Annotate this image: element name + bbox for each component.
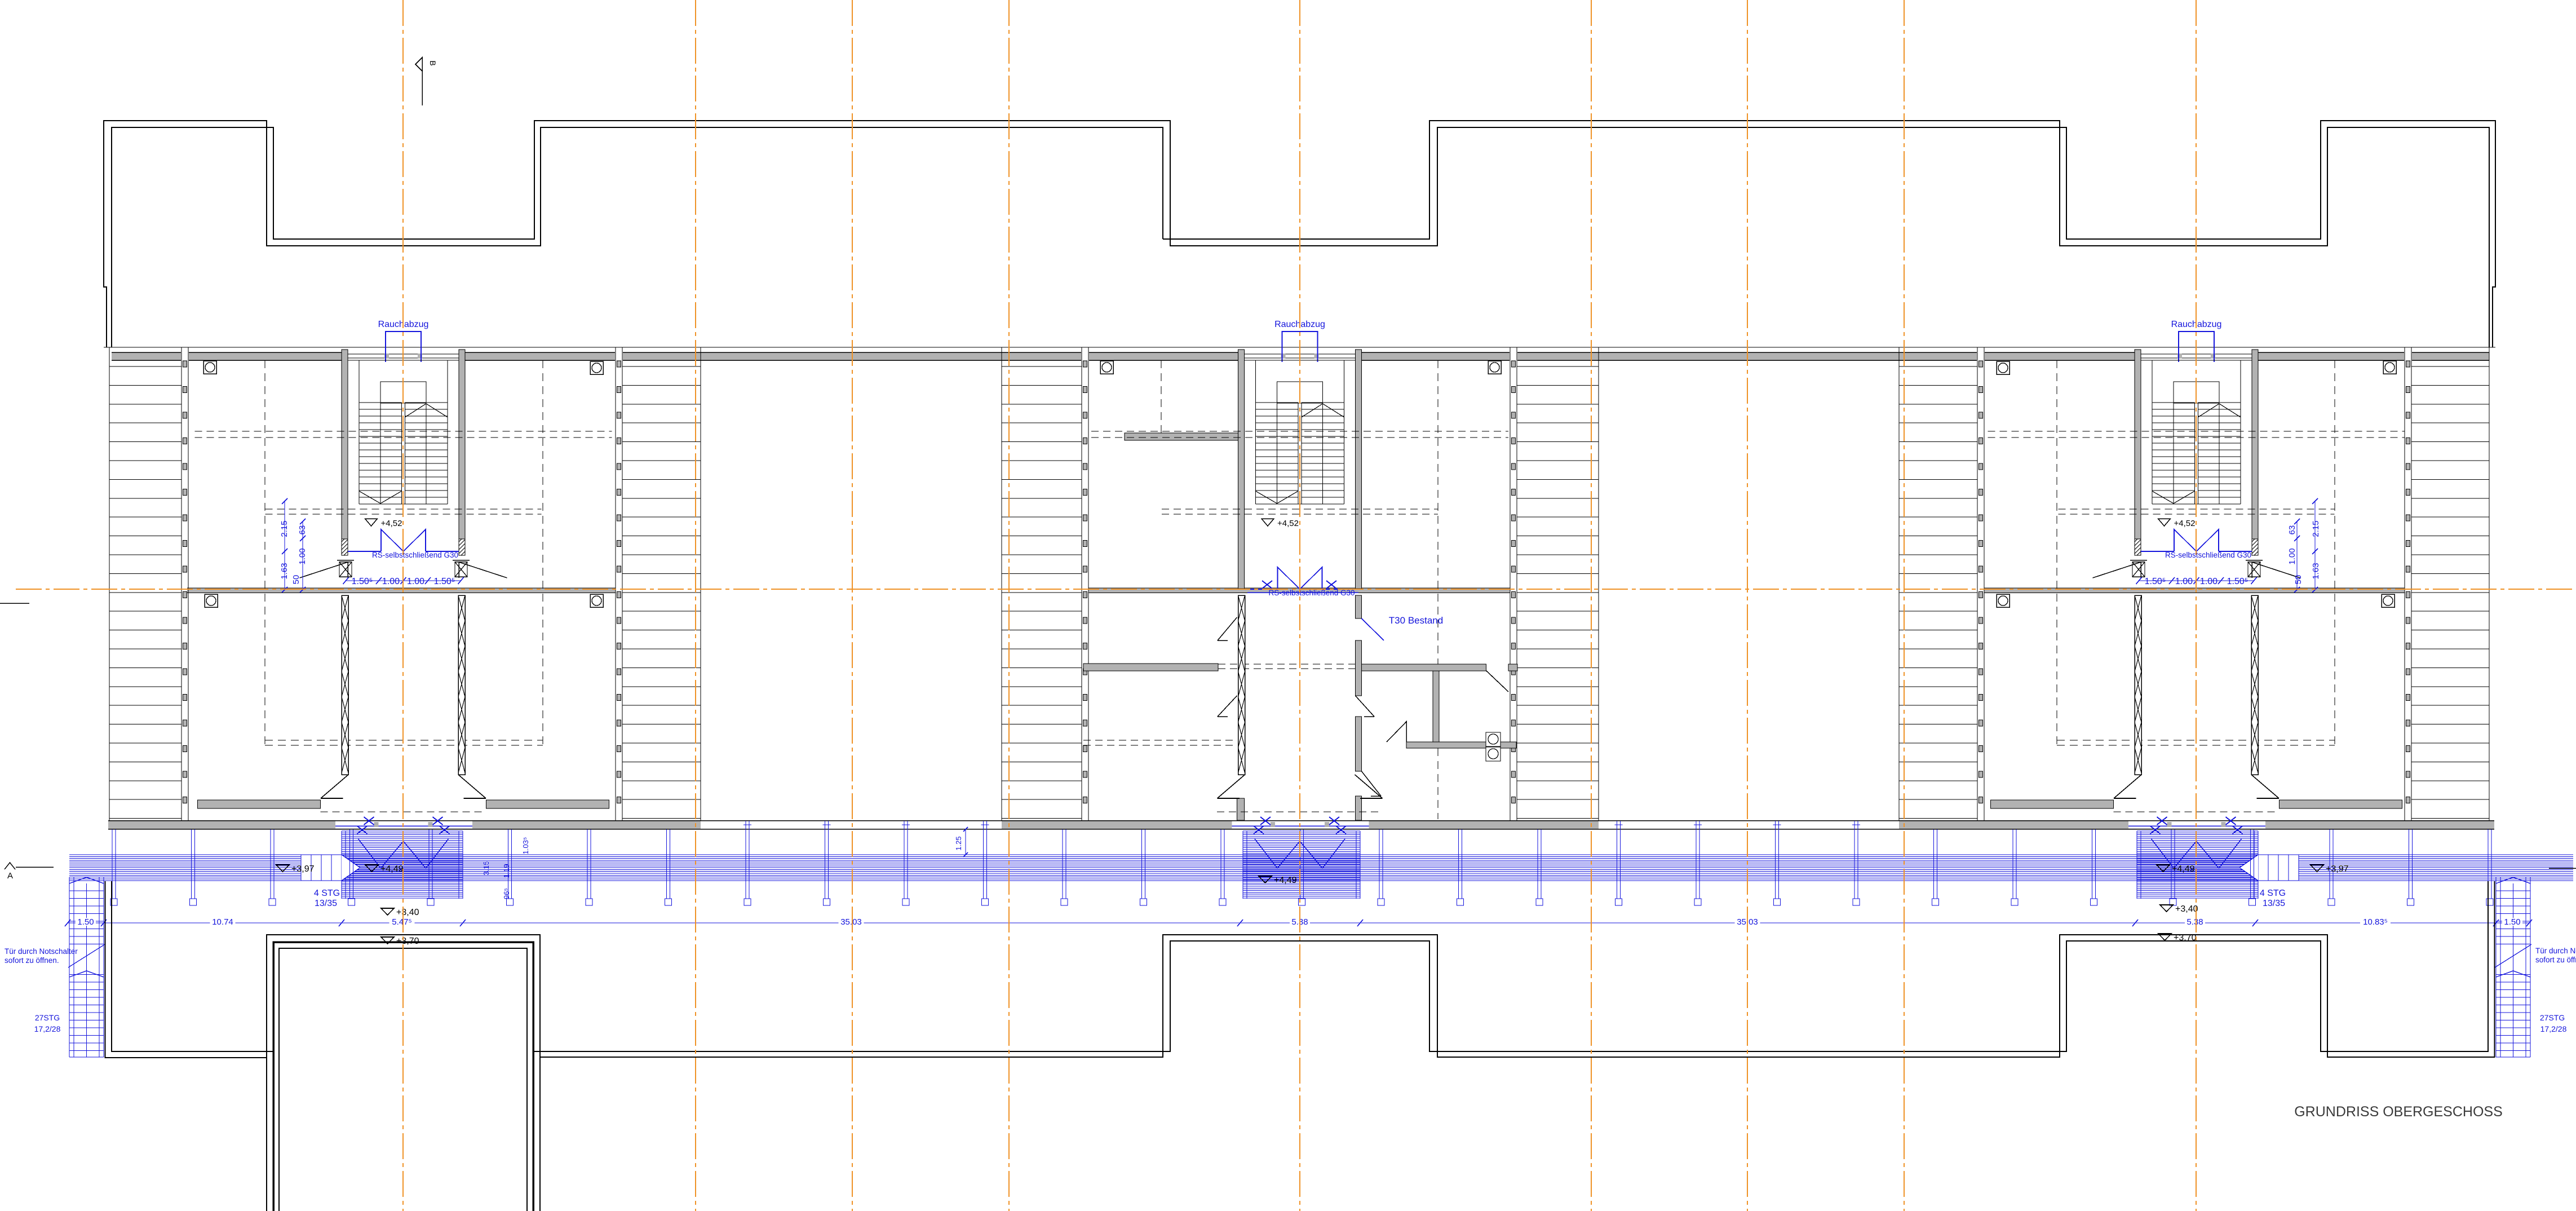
svg-text:RS-selbstschließend G30: RS-selbstschließend G30 [372, 551, 458, 559]
svg-text:50: 50 [2294, 575, 2303, 585]
svg-text:1.19: 1.19 [502, 864, 511, 878]
svg-text:T30 Bestand: T30 Bestand [1389, 615, 1443, 626]
svg-text:A: A [7, 871, 13, 881]
svg-text:2.15: 2.15 [280, 520, 289, 537]
svg-text:1.50⁵: 1.50⁵ [434, 577, 455, 586]
svg-text:RS-selbstschließend G30: RS-selbstschließend G30 [1268, 589, 1355, 597]
svg-text:1.00: 1.00 [407, 577, 424, 586]
svg-text:5.38: 5.38 [2186, 917, 2203, 927]
svg-text:+3,97: +3,97 [291, 864, 315, 874]
svg-text:4 STG: 4 STG [2260, 889, 2286, 898]
svg-text:1.63: 1.63 [280, 563, 289, 579]
svg-text:+4,49: +4,49 [2172, 864, 2195, 874]
svg-text:B: B [428, 60, 437, 65]
svg-text:27STG: 27STG [2540, 1013, 2565, 1022]
svg-text:+4,52: +4,52 [2174, 519, 2196, 528]
svg-text:17,2/28: 17,2/28 [34, 1024, 61, 1033]
svg-text:35.03: 35.03 [840, 917, 862, 927]
svg-text:+4,49: +4,49 [380, 864, 404, 874]
svg-text:+3,40: +3,40 [2175, 904, 2198, 914]
svg-text:+3,40: +3,40 [396, 908, 419, 917]
svg-text:1.00: 1.00 [382, 577, 400, 586]
svg-text:63: 63 [298, 525, 307, 535]
svg-text:1.00: 1.00 [2175, 577, 2193, 586]
svg-text:27STG: 27STG [35, 1013, 60, 1022]
svg-text:1.50⁵: 1.50⁵ [2227, 577, 2249, 586]
svg-text:13/35: 13/35 [2263, 899, 2285, 908]
svg-text:RS-selbstschließend G30: RS-selbstschließend G30 [2165, 551, 2251, 559]
svg-text:1.03⁵: 1.03⁵ [521, 837, 530, 855]
svg-text:96⁵: 96⁵ [502, 888, 511, 899]
svg-text:50: 50 [291, 575, 301, 585]
svg-text:3.15: 3.15 [482, 861, 490, 875]
svg-text:1.63: 1.63 [2311, 563, 2321, 579]
svg-text:+4,52: +4,52 [381, 519, 402, 528]
svg-text:10.83⁵: 10.83⁵ [2363, 917, 2388, 927]
svg-text:63: 63 [2287, 525, 2297, 535]
svg-text:1.50⁵: 1.50⁵ [352, 577, 373, 586]
svg-text:Tür durch Nots: Tür durch Nots [2535, 947, 2576, 955]
svg-text:+4,49: +4,49 [1274, 876, 1297, 885]
svg-text:1.50: 1.50 [2504, 917, 2520, 927]
svg-text:1.00: 1.00 [2287, 548, 2297, 564]
svg-text:17,2/28: 17,2/28 [2540, 1024, 2567, 1033]
svg-text:GRUNDRISS OBERGESCHOSS: GRUNDRISS OBERGESCHOSS [2294, 1104, 2503, 1120]
svg-text:13/35: 13/35 [315, 899, 337, 908]
svg-text:2.15: 2.15 [2311, 520, 2321, 537]
svg-text:sofort zu öffne: sofort zu öffne [2535, 956, 2576, 964]
svg-text:1.00: 1.00 [298, 548, 307, 564]
svg-text:1.00: 1.00 [2200, 577, 2218, 586]
svg-text:5.47⁵: 5.47⁵ [392, 917, 411, 927]
svg-text:1.50: 1.50 [77, 917, 94, 927]
svg-text:1.25: 1.25 [954, 836, 963, 850]
svg-text:Tür durch Notschalter: Tür durch Notschalter [5, 947, 78, 956]
svg-text:+3,97: +3,97 [2326, 864, 2349, 874]
svg-text:10.74: 10.74 [212, 917, 233, 927]
svg-text:+4,52: +4,52 [1277, 519, 1299, 528]
svg-text:1.50⁵: 1.50⁵ [2145, 577, 2166, 586]
svg-text:4 STG: 4 STG [314, 889, 340, 898]
svg-text:sofort zu öffnen.: sofort zu öffnen. [5, 956, 59, 965]
